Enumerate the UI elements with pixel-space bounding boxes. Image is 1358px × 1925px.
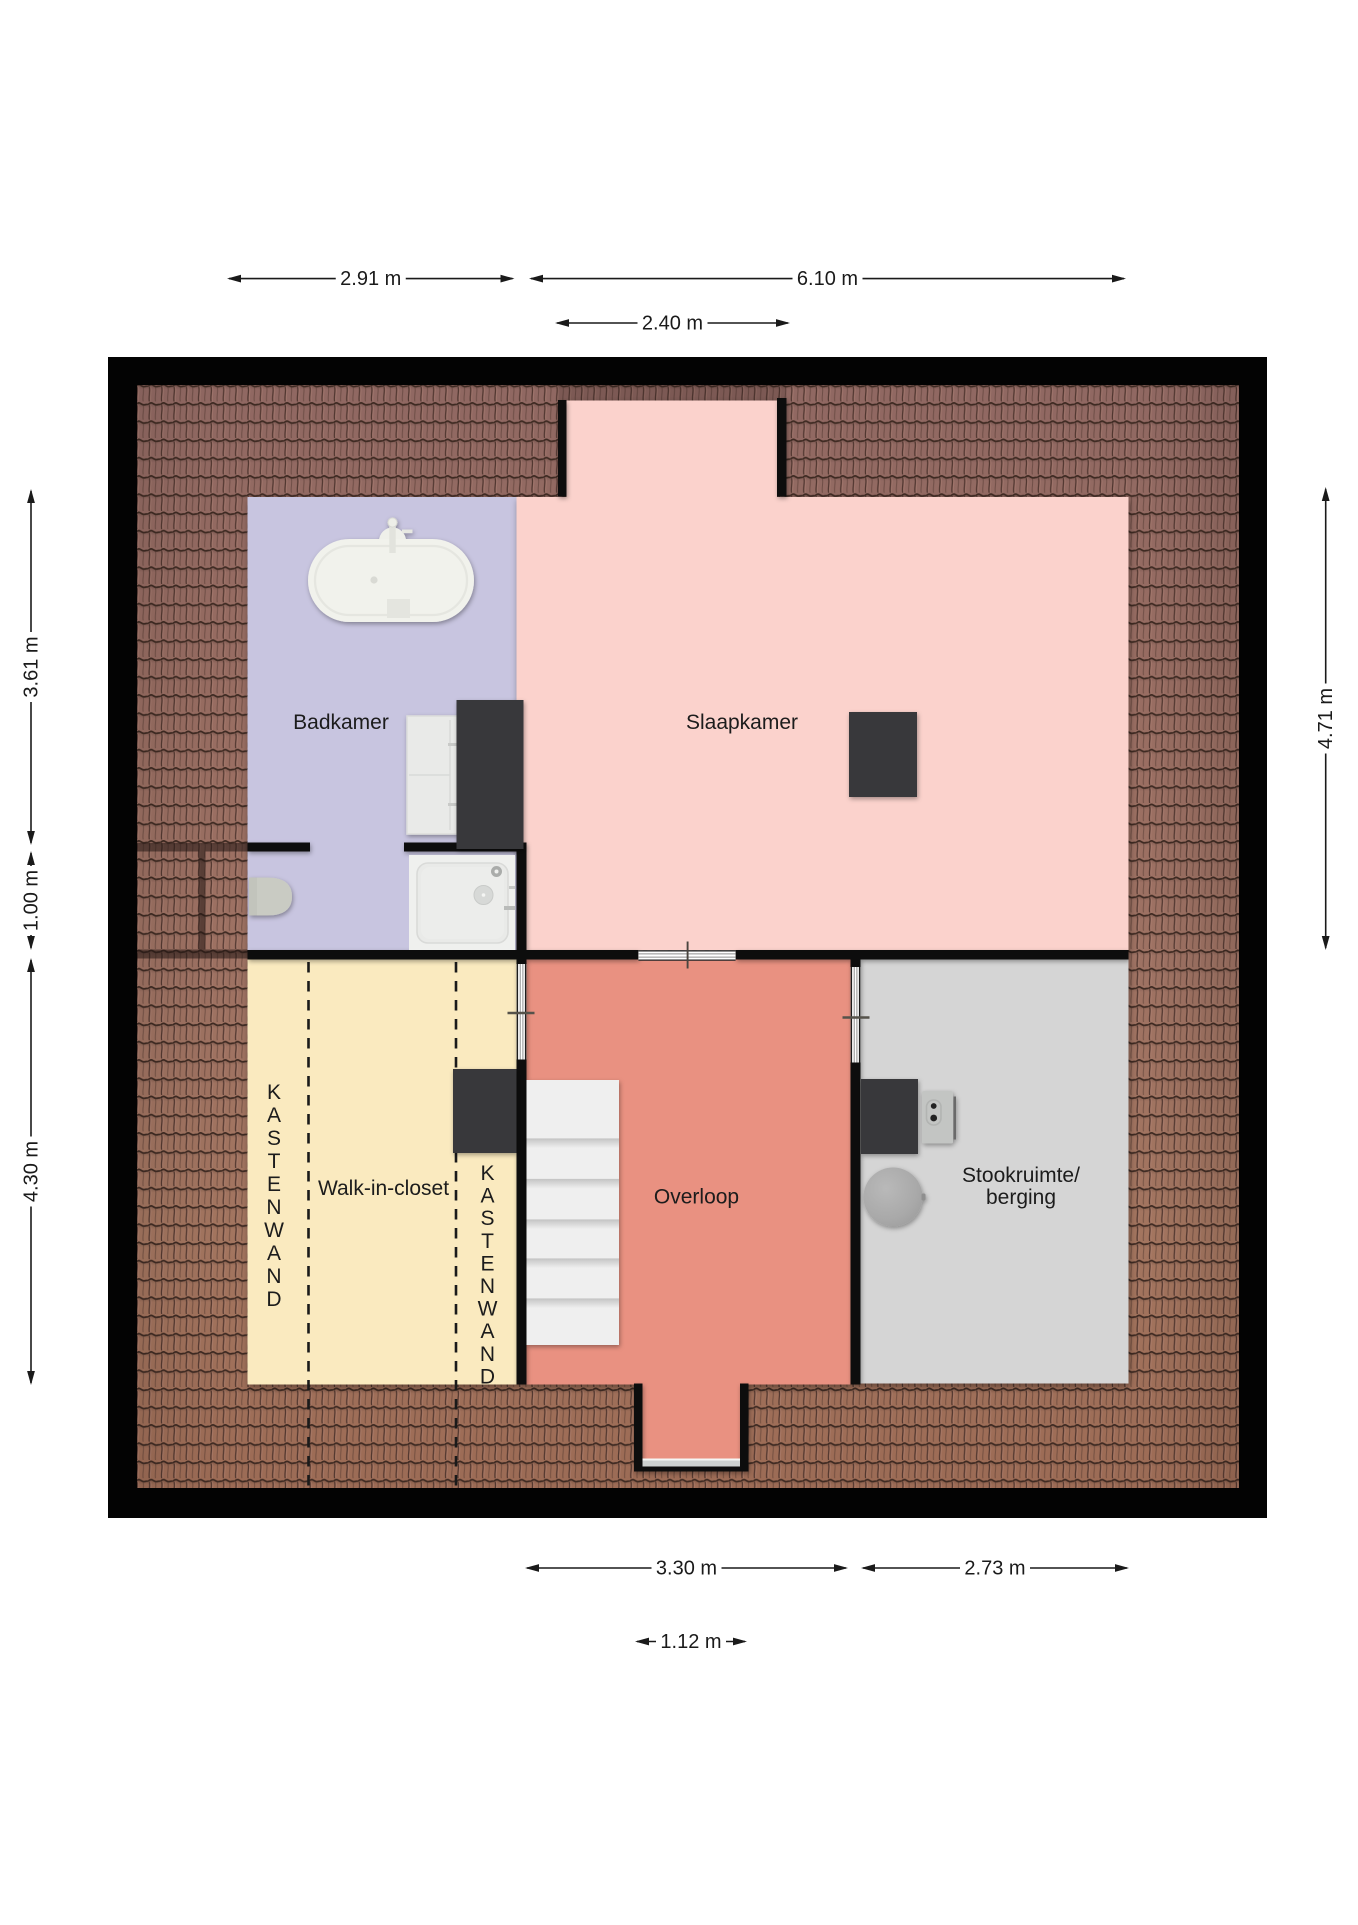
svg-text:6.10 m: 6.10 m: [797, 268, 858, 290]
svg-text:4.71 m: 4.71 m: [1315, 688, 1337, 749]
svg-text:3.30 m: 3.30 m: [656, 1558, 717, 1580]
svg-text:4.30 m: 4.30 m: [21, 1141, 43, 1202]
svg-text:1.00 m: 1.00 m: [21, 870, 43, 931]
svg-text:2.91 m: 2.91 m: [340, 268, 401, 290]
svg-text:Walk-in-closet: Walk-in-closet: [318, 1177, 449, 1200]
svg-text:2.73 m: 2.73 m: [964, 1558, 1025, 1580]
svg-text:1.12 m: 1.12 m: [660, 1631, 721, 1653]
svg-text:Slaapkamer: Slaapkamer: [686, 711, 798, 734]
svg-text:2.40 m: 2.40 m: [642, 313, 703, 335]
svg-text:Badkamer: Badkamer: [293, 711, 389, 734]
svg-text:3.61 m: 3.61 m: [21, 636, 43, 697]
svg-text:Overloop: Overloop: [654, 1186, 739, 1209]
